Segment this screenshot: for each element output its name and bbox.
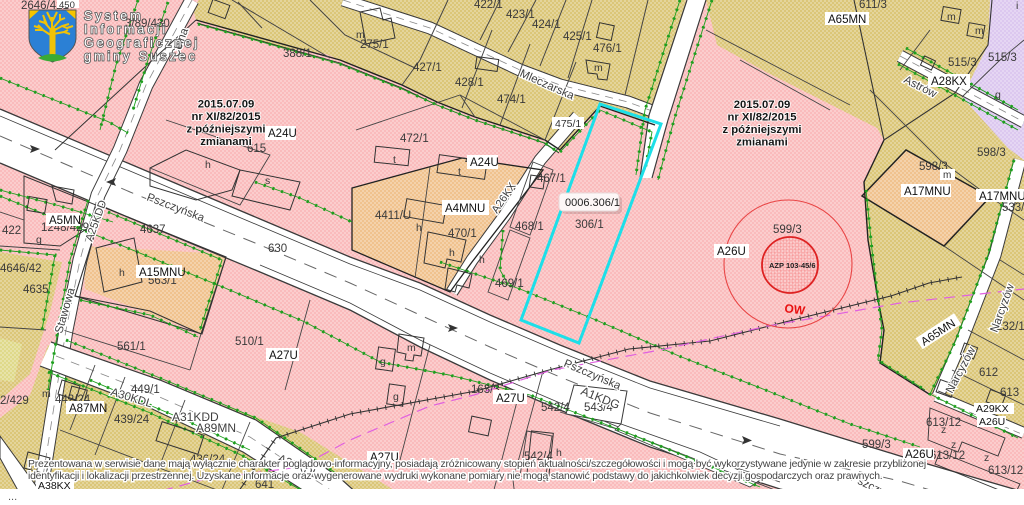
svg-text:m: m <box>943 170 951 181</box>
svg-text:450: 450 <box>59 0 75 11</box>
svg-text:A4MNU: A4MNU <box>445 203 485 215</box>
svg-text:599/3: 599/3 <box>773 224 802 236</box>
svg-text:A26U: A26U <box>717 246 746 258</box>
svg-text:zmianami: zmianami <box>736 137 787 149</box>
svg-text:h: h <box>416 222 422 234</box>
svg-text:422/1: 422/1 <box>474 0 503 11</box>
svg-text:s: s <box>265 175 270 187</box>
svg-text:Informacji: Informacji <box>84 23 168 37</box>
svg-text:424/1: 424/1 <box>532 19 561 31</box>
svg-text:g: g <box>36 234 42 246</box>
svg-text:z: z <box>941 424 946 436</box>
svg-text:nr XI/82/2015: nr XI/82/2015 <box>727 112 796 124</box>
svg-text:m: m <box>947 11 956 23</box>
svg-text:A29KX: A29KX <box>976 403 1009 415</box>
svg-text:...: ... <box>8 491 17 503</box>
svg-text:h: h <box>119 267 125 279</box>
svg-text:zmianami: zmianami <box>200 136 251 148</box>
svg-text:2015.07.09: 2015.07.09 <box>198 99 255 111</box>
svg-text:A65MN: A65MN <box>828 14 866 26</box>
svg-text:System: System <box>84 9 144 23</box>
svg-text:A17MNU: A17MNU <box>904 186 951 198</box>
svg-text:467/1: 467/1 <box>537 173 566 185</box>
svg-text:Geograficznej: Geograficznej <box>84 36 200 50</box>
svg-text:510/1: 510/1 <box>235 336 264 348</box>
svg-text:470/1: 470/1 <box>448 228 477 240</box>
svg-text:428/1: 428/1 <box>455 77 484 89</box>
svg-text:m: m <box>42 388 51 400</box>
svg-text:h: h <box>205 159 211 171</box>
svg-text:475/1: 475/1 <box>555 118 581 130</box>
svg-text:4637: 4637 <box>140 224 166 236</box>
svg-text:m: m <box>975 25 984 37</box>
svg-text:identyfikacji i lokalizacji pr: identyfikacji i lokalizacji przestrzenne… <box>28 471 883 482</box>
svg-text:AZP 103-45/6: AZP 103-45/6 <box>769 261 816 270</box>
svg-text:612: 612 <box>979 367 998 379</box>
svg-text:A24U: A24U <box>268 128 297 140</box>
svg-text:515/3: 515/3 <box>988 52 1017 64</box>
svg-text:A17MNU: A17MNU <box>979 191 1024 203</box>
svg-text:g: g <box>995 89 1001 101</box>
svg-text:g: g <box>393 391 399 403</box>
svg-text:613/12: 613/12 <box>930 450 965 462</box>
svg-text:423/1: 423/1 <box>506 9 535 21</box>
svg-text:561/1: 561/1 <box>117 341 146 353</box>
svg-text:t: t <box>393 154 396 166</box>
svg-text:h: h <box>449 247 455 259</box>
svg-text:4646/42: 4646/42 <box>0 263 42 275</box>
svg-text:h: h <box>479 254 485 266</box>
svg-text:A24U: A24U <box>470 157 499 169</box>
svg-text:611/3: 611/3 <box>859 0 887 11</box>
svg-text:z: z <box>984 452 989 464</box>
svg-text:i: i <box>1016 0 1018 12</box>
svg-text:425/1: 425/1 <box>563 31 592 43</box>
svg-text:A89MN: A89MN <box>196 421 236 435</box>
svg-text:427/1: 427/1 <box>413 62 442 74</box>
svg-text:A28KX: A28KX <box>931 76 967 88</box>
svg-text:m: m <box>356 29 365 41</box>
svg-text:474/1: 474/1 <box>497 94 526 106</box>
svg-text:469/1: 469/1 <box>495 278 524 290</box>
svg-text:h: h <box>556 447 562 459</box>
svg-text:z: z <box>951 439 956 451</box>
svg-text:542/4: 542/4 <box>541 402 570 414</box>
svg-text:388/1: 388/1 <box>283 48 312 60</box>
svg-text:472/1: 472/1 <box>400 133 429 145</box>
svg-text:4411/U: 4411/U <box>375 210 411 222</box>
svg-text:2/429: 2/429 <box>0 395 29 407</box>
svg-text:m: m <box>407 342 416 354</box>
svg-text:t: t <box>458 166 461 178</box>
svg-text:A87MN: A87MN <box>69 403 107 415</box>
svg-text:A15MNU: A15MNU <box>139 267 186 279</box>
svg-text:A27U: A27U <box>269 350 298 362</box>
svg-text:A27U: A27U <box>496 393 525 405</box>
svg-text:306/1: 306/1 <box>575 219 604 231</box>
svg-text:g: g <box>380 356 386 368</box>
svg-text:613: 613 <box>1000 387 1019 399</box>
svg-text:2015.07.09: 2015.07.09 <box>734 99 791 111</box>
svg-text:598/3: 598/3 <box>977 147 1006 159</box>
svg-text:z późniejszymi: z późniejszymi <box>722 124 801 136</box>
svg-text:422: 422 <box>2 225 21 237</box>
svg-text:476/1: 476/1 <box>593 43 622 55</box>
svg-text:515/3: 515/3 <box>948 57 977 69</box>
svg-text:m: m <box>594 62 603 74</box>
svg-text:Prezentowana w serwisie dane m: Prezentowana w serwisie dane mają wyłącz… <box>28 459 926 470</box>
svg-text:nr XI/82/2015: nr XI/82/2015 <box>191 111 260 123</box>
svg-text:533/3: 533/3 <box>1002 202 1024 214</box>
svg-text:0006.306/1: 0006.306/1 <box>565 197 620 209</box>
svg-text:A26U: A26U <box>979 416 1005 428</box>
svg-text:468/1: 468/1 <box>515 221 544 233</box>
svg-text:z późniejszymi: z późniejszymi <box>186 124 265 136</box>
svg-text:gminy Suszec: gminy Suszec <box>84 50 198 64</box>
svg-text:4635: 4635 <box>23 284 49 296</box>
svg-text:599/3: 599/3 <box>862 439 891 451</box>
svg-text:613/12: 613/12 <box>988 465 1023 477</box>
svg-text:A5MN: A5MN <box>49 215 81 227</box>
svg-text:439/24: 439/24 <box>114 414 150 426</box>
svg-text:630: 630 <box>268 243 287 255</box>
svg-text:OW: OW <box>784 301 807 318</box>
